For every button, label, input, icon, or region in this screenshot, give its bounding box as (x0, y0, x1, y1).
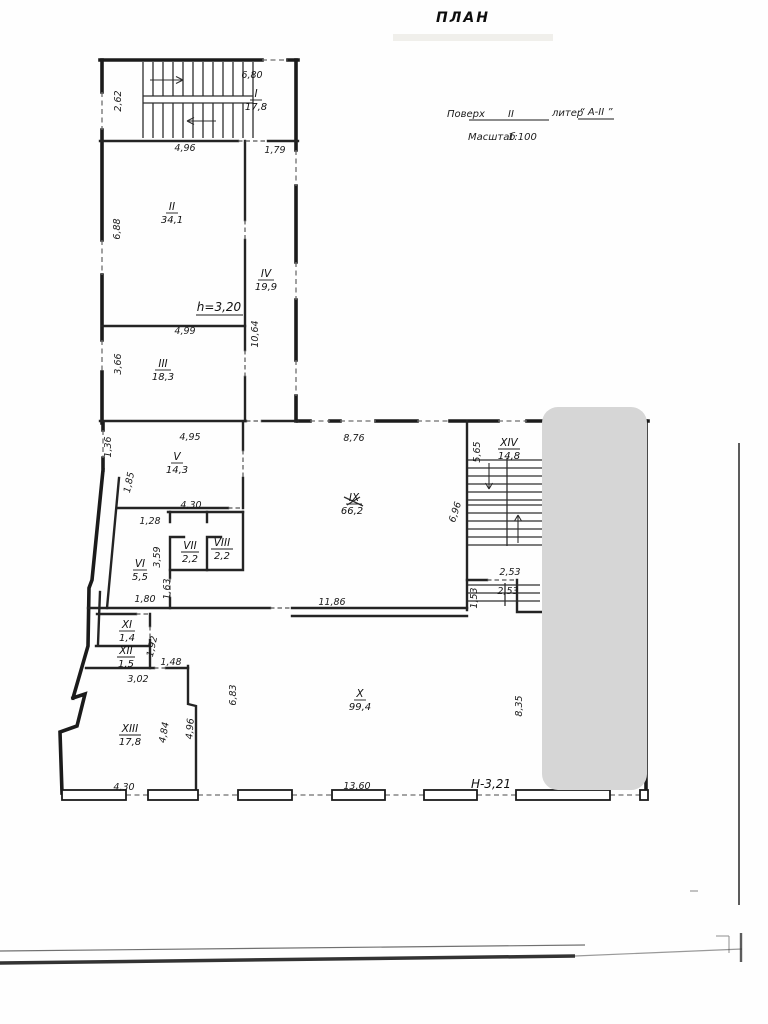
room-area: 1,4 (119, 633, 135, 644)
dimension-label: 10,64 (250, 320, 261, 347)
room-label-XII: XII 1,5 (117, 645, 135, 670)
door-openings (136, 141, 517, 668)
room-area: 2,2 (182, 554, 198, 565)
faded-stamp-smudge (393, 34, 553, 41)
room-area: 18,3 (152, 372, 174, 383)
room-numeral: II (169, 201, 175, 213)
room-numeral: IV (261, 268, 272, 280)
floor-label: Поверх (447, 109, 485, 120)
room-numeral: XI (121, 619, 132, 631)
room-labels: I 17,8 II 34,1 III 18,3 IV 19,9 V 14,3 V… (117, 88, 520, 748)
room-numeral: I (254, 88, 257, 100)
interior-walls (86, 141, 545, 793)
dimension-label: 1,48 (160, 657, 181, 668)
dimension-label: 4,84 (157, 721, 172, 744)
dimension-label: 13,60 (343, 781, 370, 792)
dimension-label: 2,53 (497, 586, 518, 597)
room-numeral: XII (118, 645, 132, 657)
room-label-I: I 17,8 (245, 88, 267, 113)
room-numeral: VIII (214, 537, 230, 549)
floor-value: II (508, 109, 514, 120)
dimension-label: 3,02 (127, 674, 148, 685)
plan-title: ПЛАН (436, 10, 490, 26)
liter-label: литер (551, 108, 583, 119)
room-area: 99,4 (349, 702, 371, 713)
dimension-label: 2,53 (499, 567, 520, 578)
dimension-label: 1,53 (469, 587, 480, 608)
floor-plan: ПЛАН Поверх II литер “ А-II ” Масштаб 1:… (0, 0, 768, 1024)
room-numeral: VI (135, 558, 145, 570)
page-crease-thin (0, 945, 585, 951)
title-block: Поверх II литер “ А-II ” Масштаб 1:100 (447, 107, 614, 143)
dimension-label: 4,95 (179, 432, 200, 443)
scale-value: 1:100 (508, 132, 537, 143)
staircase-right (468, 458, 542, 606)
room-area: 14,8 (498, 451, 520, 462)
dimension-label: 6,80 (241, 70, 262, 81)
dimension-label: 1,36 (103, 436, 114, 457)
grey-redaction-overlay (542, 407, 647, 790)
room-numeral: V (173, 451, 181, 463)
liter-value: “ А-II ” (579, 107, 613, 118)
dimension-label: 11,86 (318, 597, 345, 608)
room-area: 17,8 (119, 737, 141, 748)
room-numeral: III (158, 358, 167, 370)
dimension-label: 5,65 (472, 441, 483, 462)
dimension-label: 1,28 (139, 516, 160, 527)
room-label-VIII: VIII 2,2 (211, 537, 233, 562)
room-label-XIV: XIV 14,8 (498, 437, 520, 462)
room-area: 14,3 (166, 465, 188, 476)
room-numeral: IX (349, 492, 360, 504)
dimension-label: 4,30 (180, 500, 201, 511)
room-numeral: XIII (121, 723, 138, 735)
room-area: 2,2 (214, 551, 230, 562)
stair-direction-arrow-right (150, 77, 183, 84)
room-label-VII: VII 2,2 (181, 540, 199, 565)
room-label-X: X 99,4 (349, 688, 371, 713)
room-area: 1,5 (118, 659, 134, 670)
room-label-XIII: XIII 17,8 (119, 723, 141, 748)
dimension-label: 6,88 (112, 218, 123, 239)
dimension-label: 1,85 (122, 471, 137, 494)
dimension-label: 1,92 (145, 635, 160, 658)
room-area: 66,2 (341, 506, 363, 517)
dimension-label: 3,59 (152, 546, 163, 567)
page-crease-fade (575, 949, 742, 956)
dimension-label: 4,30 (113, 782, 134, 793)
dimension-labels: 6,80 2,62 4,96 1,79 6,88 4,99 10,64 3,66… (103, 70, 525, 793)
staircase-upper (143, 62, 253, 138)
scanned-floor-plan-page: ПЛАН Поверх II литер “ А-II ” Масштаб 1:… (0, 0, 768, 1024)
dimension-label: 3,66 (113, 353, 124, 374)
height-mark-note: Н-3,21 (471, 777, 511, 791)
room-label-III: III 18,3 (152, 358, 174, 383)
dimension-label: 1,79 (264, 145, 285, 156)
room-area: 17,8 (245, 102, 267, 113)
page-crease-thick (0, 956, 575, 963)
room-label-IV: IV 19,9 (255, 268, 277, 293)
dimension-label: 4,96 (184, 718, 196, 740)
dimension-label: 1,80 (134, 594, 155, 605)
room-label-II: II 34,1 (161, 201, 183, 226)
room-label-XI: XI 1,4 (119, 619, 135, 644)
room-area: 34,1 (161, 215, 183, 226)
dimension-label: 1,63 (162, 578, 173, 599)
dimension-label: 8,76 (343, 433, 364, 444)
room-numeral: X (355, 688, 364, 700)
room-numeral: XIV (499, 437, 518, 449)
room-label-V: V 14,3 (166, 451, 188, 476)
room-area: 5,5 (132, 572, 148, 583)
dimension-label: 4,99 (174, 326, 195, 337)
room-label-VI: VI 5,5 (132, 558, 148, 583)
room-area: 19,9 (255, 282, 277, 293)
room-numeral: VII (183, 540, 196, 552)
stair-direction-arrow-left (187, 118, 216, 125)
ceiling-height-note: h=3,20 (197, 300, 242, 314)
dimension-label: 4,96 (174, 143, 195, 154)
dimension-label: 6,96 (447, 500, 464, 524)
dimension-label: 2,62 (113, 90, 124, 111)
dimension-label: 6,83 (228, 684, 239, 705)
dimension-label: 8,35 (514, 695, 525, 716)
